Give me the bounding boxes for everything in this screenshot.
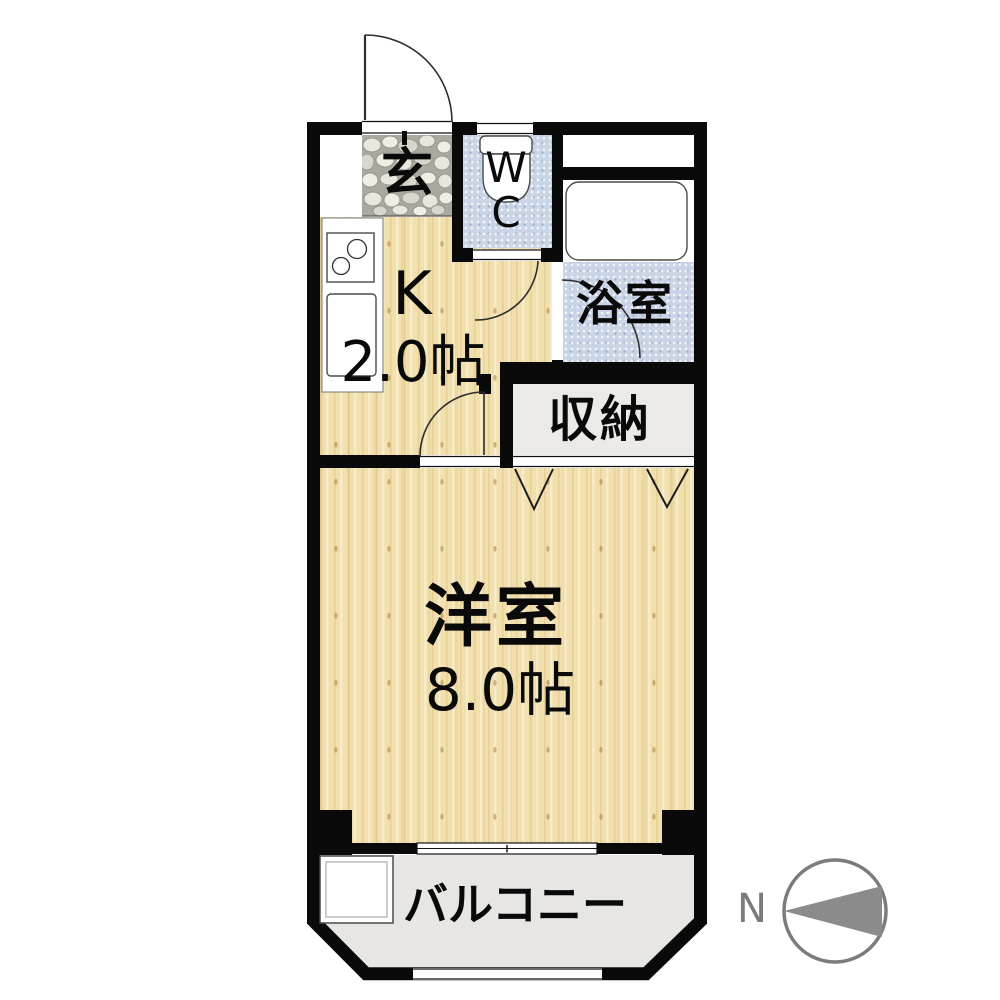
closet-opening: [513, 455, 694, 468]
wall-segment: [694, 122, 707, 862]
main-room-label: 洋室: [346, 582, 646, 653]
bathtub-icon: [566, 182, 687, 260]
wall-segment: [307, 455, 420, 468]
kitchen-size-label: 2.0帖: [313, 334, 513, 393]
wall-segment: [662, 810, 707, 855]
wc-window: [477, 122, 533, 135]
kitchen-room-opening: [420, 455, 500, 468]
compass-icon: [784, 860, 886, 962]
entrance-door-icon: [365, 35, 452, 122]
wall-segment: [352, 843, 417, 854]
wall-segment: [552, 135, 563, 262]
wall-segment: [307, 810, 352, 855]
stove-burner-icon: [348, 240, 367, 259]
main-room-size-label: 8.0帖: [350, 660, 650, 721]
balcony-sliding-window: [417, 843, 597, 854]
kitchen-label: K: [362, 263, 462, 326]
north-label: N: [722, 888, 782, 930]
genkan-label: 玄: [377, 147, 437, 202]
closet-door-triangles: [515, 469, 688, 509]
wc-door-sill: [473, 249, 541, 261]
bathroom-label: 浴室: [525, 280, 725, 329]
kitchen-door-icon: [420, 392, 484, 456]
balcony-label: バルコニー: [365, 881, 665, 928]
wall-segment: [452, 122, 463, 262]
stove-burner-icon: [333, 258, 350, 275]
balcony-railing: [413, 968, 602, 980]
floor-plan: 玄 WC K 2.0帖 浴室 収納 洋室 8.0帖 バルコニー N: [0, 0, 1000, 1000]
wall-segment: [307, 122, 320, 862]
storage-label: 収納: [500, 394, 700, 445]
wc-label: WC: [484, 145, 528, 235]
wall-segment: [552, 167, 694, 180]
wall-segment: [452, 248, 473, 262]
wall-segment: [597, 843, 663, 854]
wall-segment: [502, 362, 707, 384]
